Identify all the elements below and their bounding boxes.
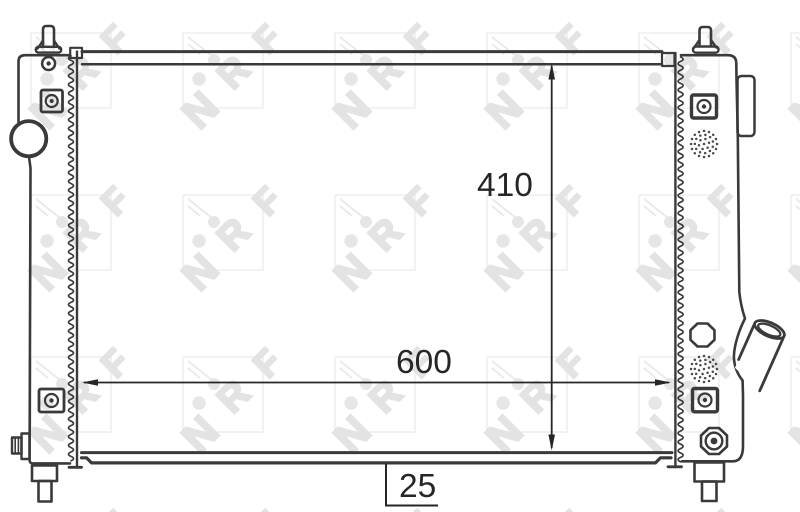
- svg-text:25: 25: [399, 468, 436, 505]
- svg-text:600: 600: [396, 344, 452, 381]
- svg-text:410: 410: [477, 167, 533, 204]
